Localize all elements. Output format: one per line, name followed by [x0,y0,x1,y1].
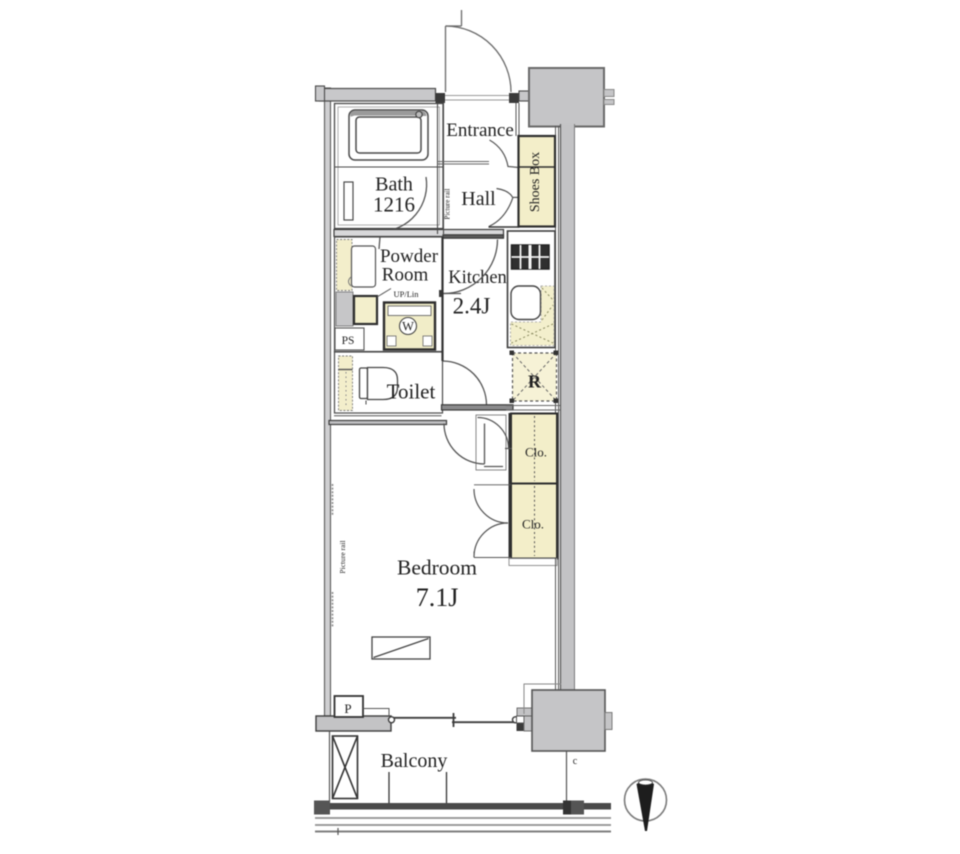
svg-text:R: R [528,372,542,392]
svg-text:PS: PS [342,335,355,347]
svg-text:W: W [402,320,414,334]
svg-text:Clo.: Clo. [522,517,544,532]
svg-text:Clo.: Clo. [525,445,547,460]
svg-text:Entrance: Entrance [446,120,514,141]
svg-text:Room: Room [382,265,429,286]
svg-text:UP/Lin: UP/Lin [393,289,419,299]
svg-text:2.4J: 2.4J [453,294,491,319]
svg-text:7.1J: 7.1J [416,583,459,612]
svg-text:Picture rail: Picture rail [338,540,347,573]
svg-text:Hall: Hall [461,188,496,210]
svg-text:Kitchen: Kitchen [448,268,507,288]
svg-text:1216: 1216 [373,193,415,217]
svg-text:Picture rail: Picture rail [444,188,452,219]
svg-text:Balcony: Balcony [381,750,448,772]
svg-text:c: c [573,756,578,767]
svg-text:Bedroom: Bedroom [397,556,477,580]
svg-text:Toilet: Toilet [387,380,436,404]
svg-text:P: P [344,701,351,716]
svg-text:Shoes Box: Shoes Box [528,152,543,212]
